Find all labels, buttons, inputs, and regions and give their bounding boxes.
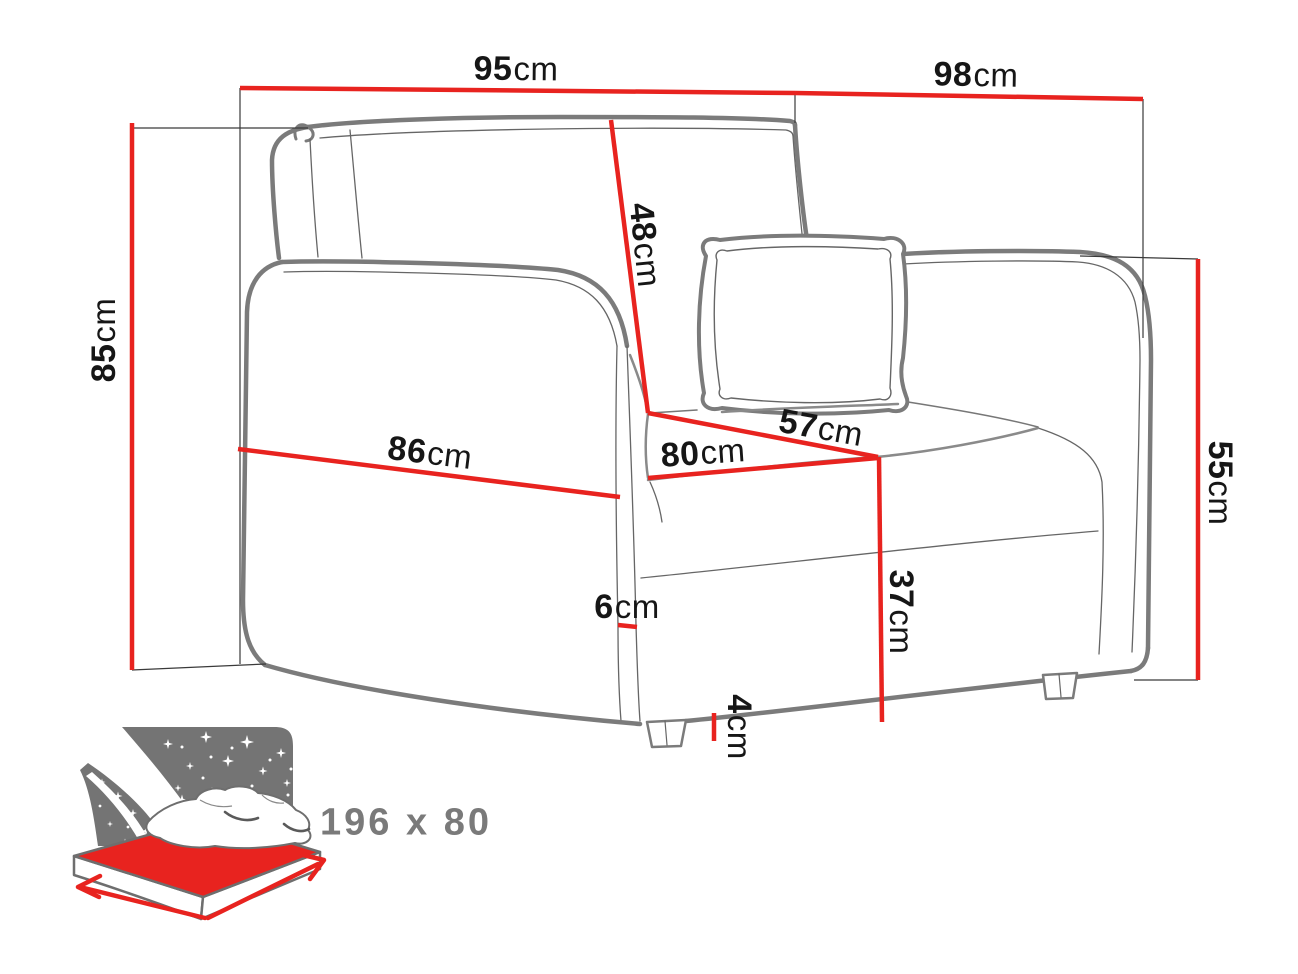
dimension-unit: cm xyxy=(1202,480,1239,525)
pillow xyxy=(699,236,907,414)
dimension-unit: cm xyxy=(721,715,758,760)
dimension-label-overall-height: 85cm xyxy=(87,298,121,383)
dimension-unit: cm xyxy=(815,409,866,453)
bottom-right-corner xyxy=(1131,648,1148,671)
dimension-value: 80 xyxy=(659,434,700,475)
backrest-crease-1 xyxy=(310,139,318,257)
seat-back-seam-right xyxy=(908,402,1038,427)
dimension-value: 85 xyxy=(85,344,123,383)
armchair-outline xyxy=(243,117,1151,747)
dimension-unit: cm xyxy=(425,434,474,476)
ext-arm-top xyxy=(1080,256,1198,259)
dimension-value: 37 xyxy=(882,570,920,609)
dimension-value: 55 xyxy=(1201,441,1239,480)
dimension-unit: cm xyxy=(627,240,669,289)
front-left-leg xyxy=(647,720,686,747)
dimension-unit: cm xyxy=(615,588,660,625)
dimension-diagram: 95cm 98cm 85cm 48cm 57cm 80cm 86cm 37cm … xyxy=(0,0,1298,974)
backrest-top-inner-line xyxy=(320,128,803,243)
dimension-label-side-rail: 6cm xyxy=(594,590,659,624)
dim-line-95 xyxy=(240,88,795,93)
extension-lines xyxy=(132,88,1198,680)
arrow-length-head xyxy=(78,876,100,897)
base-seam xyxy=(641,531,1098,578)
backrest-left-edge xyxy=(272,127,308,258)
dimension-value: 98 xyxy=(933,55,972,94)
dimension-label-top-depth: 98cm xyxy=(933,57,1018,92)
armchair-diagram-svg xyxy=(0,0,1298,974)
front-post-line-left xyxy=(616,346,621,721)
dimension-unit: cm xyxy=(973,56,1019,94)
dimension-unit: cm xyxy=(513,50,558,87)
right-arm-inner-line xyxy=(903,261,1140,652)
dimension-label-armrest-height: 55cm xyxy=(1203,441,1237,526)
backrest-crease-2 xyxy=(350,130,362,258)
dimension-label-seat-height: 37cm xyxy=(884,570,918,655)
sleeping-area-size-label: 196 x 80 xyxy=(320,802,492,845)
dimension-lines xyxy=(132,88,1198,741)
dimension-label-leg-height: 4cm xyxy=(722,694,756,759)
dimension-label-backrest: 48cm xyxy=(624,201,667,289)
backrest-top-edge xyxy=(308,117,795,127)
ext-height-bottom xyxy=(132,664,266,670)
dimension-value: 57 xyxy=(776,402,821,446)
dimension-label-seat-width: 80cm xyxy=(660,433,747,473)
front-post-line-right xyxy=(627,346,640,721)
dimension-unit: cm xyxy=(699,431,746,471)
left-arm-outer-edge xyxy=(243,262,282,665)
dimension-value: 4 xyxy=(720,694,758,713)
bottom-edge-left xyxy=(265,665,640,724)
dimension-label-top-width: 95cm xyxy=(473,52,558,87)
dimension-value: 6 xyxy=(594,588,613,626)
dimension-value: 86 xyxy=(386,429,429,471)
right-arm-front-crease xyxy=(1038,428,1103,654)
dim-line-6 xyxy=(618,625,637,627)
front-right-leg xyxy=(1043,673,1077,699)
dimension-value: 48 xyxy=(622,201,664,244)
seat-cushion-side xyxy=(650,482,662,522)
dimension-unit: cm xyxy=(883,609,920,654)
dimension-unit: cm xyxy=(85,298,122,343)
left-arm-top-inner-line xyxy=(284,271,617,346)
dimension-value: 95 xyxy=(473,50,512,88)
seat-left-corner xyxy=(630,355,648,478)
sleeping-area-icon xyxy=(74,727,324,919)
dimension-label-front-width: 86cm xyxy=(386,431,474,475)
